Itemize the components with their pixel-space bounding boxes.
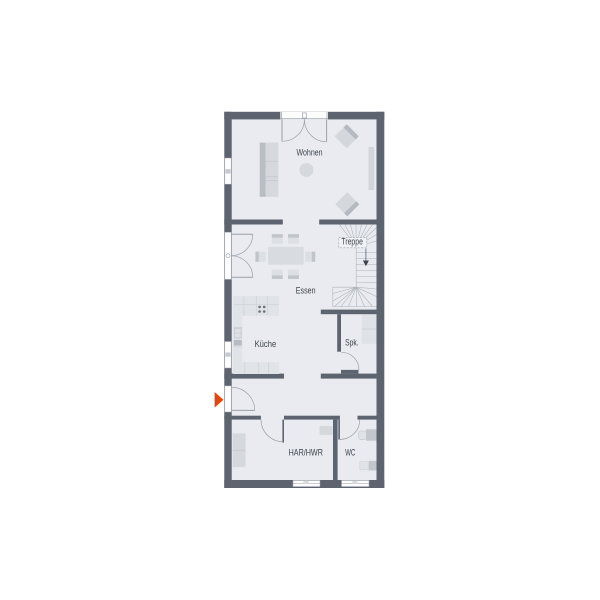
svg-text:WC: WC (345, 447, 356, 457)
svg-text:Essen: Essen (296, 286, 316, 296)
svg-text:Küche: Küche (255, 339, 277, 349)
svg-text:HAR/HWR: HAR/HWR (289, 447, 324, 457)
svg-text:Treppe: Treppe (341, 237, 363, 247)
svg-text:Wohnen: Wohnen (297, 148, 323, 158)
svg-text:Spk.: Spk. (345, 338, 359, 348)
